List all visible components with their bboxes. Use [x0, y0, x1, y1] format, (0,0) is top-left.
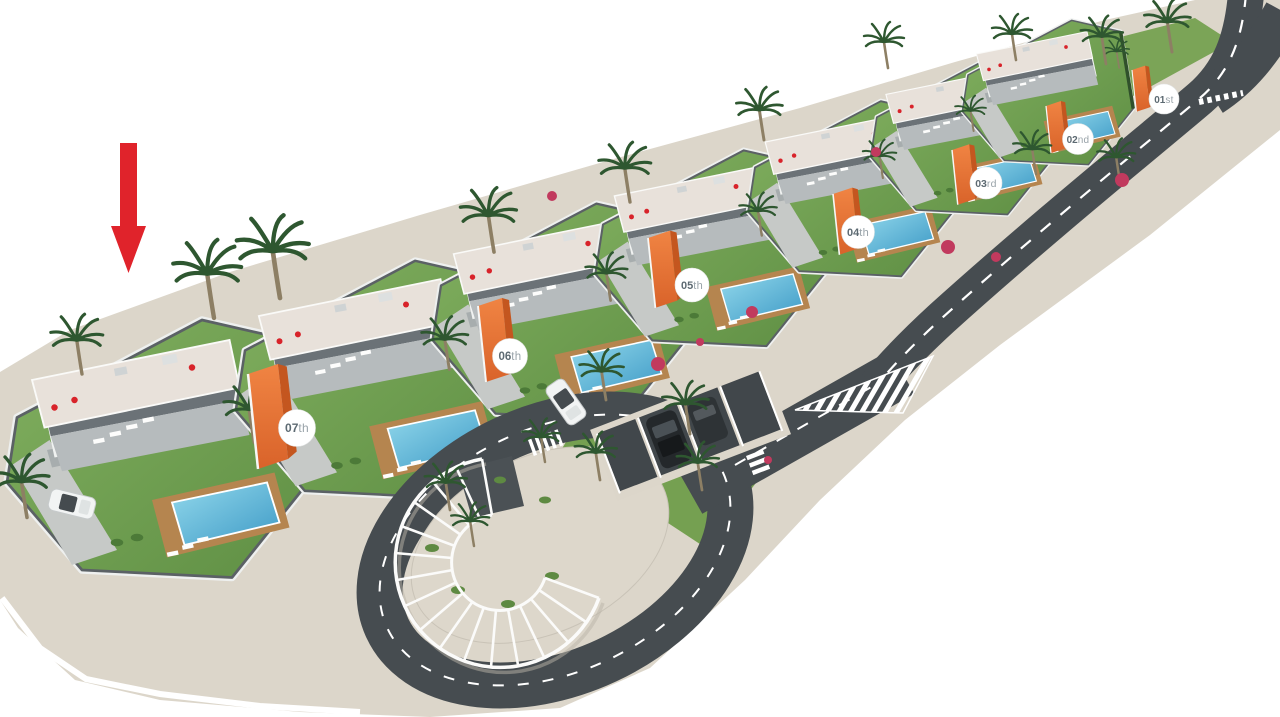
badge-unit-04: 04th — [842, 216, 875, 249]
svg-text:03rd: 03rd — [975, 178, 997, 190]
badge-unit-07: 07th — [279, 410, 316, 447]
svg-text:06th: 06th — [499, 351, 522, 363]
site-plan-render: 01st 02nd 03rd 04th 05th 06th 07th — [0, 0, 1280, 717]
badge-unit-03: 03rd — [970, 167, 1002, 199]
svg-text:02nd: 02nd — [1067, 135, 1090, 146]
svg-text:01st: 01st — [1154, 95, 1174, 106]
svg-text:05th: 05th — [681, 280, 703, 292]
svg-text:07th: 07th — [285, 421, 309, 435]
badge-unit-01: 01st — [1149, 84, 1179, 114]
red-arrow-icon — [111, 143, 146, 273]
badge-unit-05: 05th — [675, 268, 709, 302]
badge-unit-06: 06th — [493, 339, 528, 374]
badge-unit-02: 02nd — [1063, 124, 1094, 155]
svg-text:04th: 04th — [847, 227, 869, 239]
